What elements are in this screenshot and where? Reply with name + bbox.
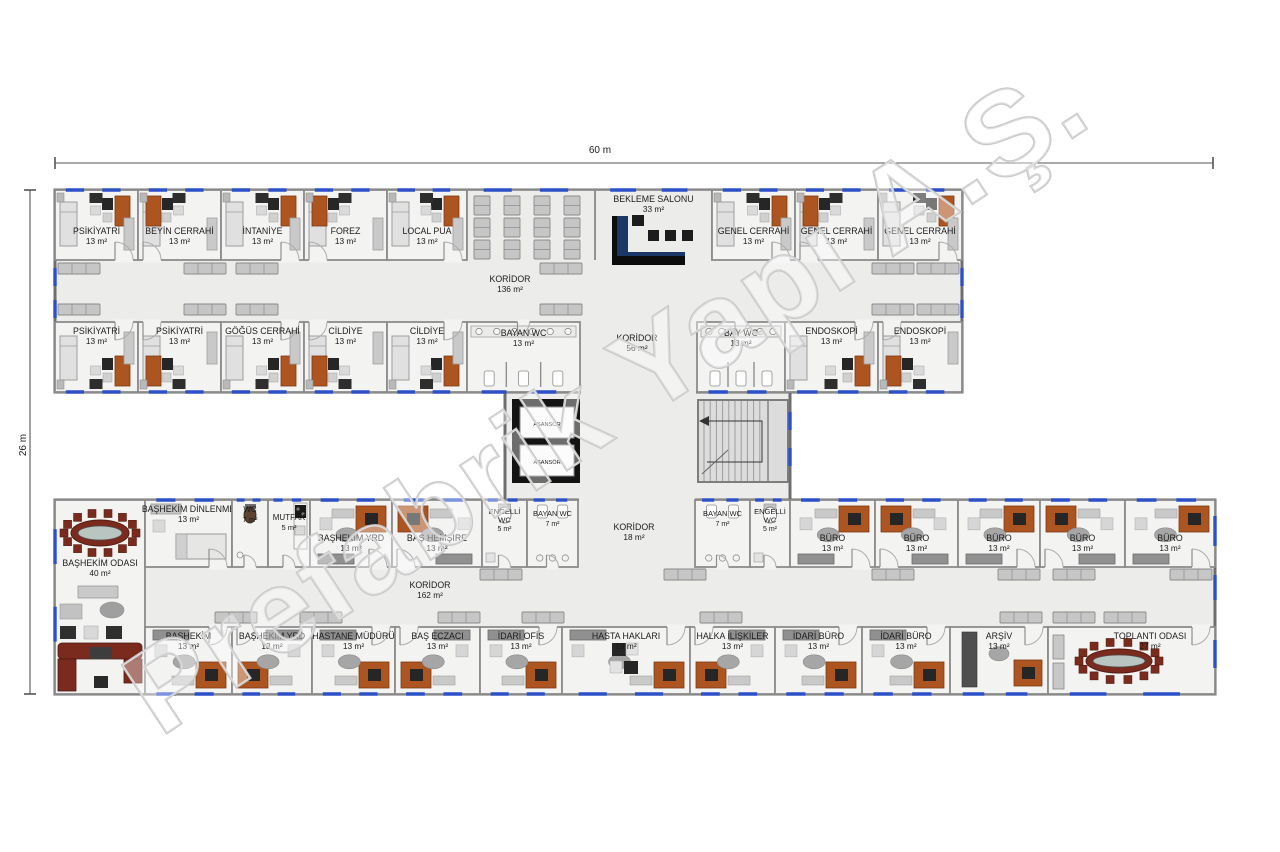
room-area-label: 13 m² — [906, 543, 927, 553]
monitor — [162, 358, 173, 370]
desk-return — [728, 676, 750, 685]
desk-return — [890, 676, 912, 685]
desk-return — [502, 676, 524, 685]
room-area-label: 7 m² — [546, 521, 561, 528]
side-table — [1101, 518, 1113, 530]
shelving — [962, 632, 977, 687]
monitor — [205, 669, 218, 681]
room-name-label: GENEL CERRAHİ — [801, 226, 873, 236]
desk-return — [270, 676, 292, 685]
side-table — [968, 518, 980, 530]
sink — [733, 555, 739, 561]
room-name-label: BAŞHEKİM — [166, 631, 211, 641]
side-table — [288, 645, 300, 657]
exec-desk-leg — [124, 659, 142, 683]
room-name-label: ARŞİV — [986, 631, 1013, 641]
room-area-label: 33 m² — [643, 204, 664, 214]
conference-chair — [1090, 672, 1098, 680]
conference-chair — [118, 545, 126, 553]
room-name-label: BAYAN WC — [501, 328, 547, 338]
monitor — [890, 513, 903, 525]
bed — [226, 202, 243, 246]
bench — [700, 612, 742, 623]
room-name-label: PSİKİYATRİ — [73, 326, 120, 336]
room-area-label: 13 m² — [335, 336, 356, 346]
door-opening — [444, 257, 462, 262]
tv — [825, 379, 838, 389]
speaker — [389, 380, 396, 389]
side-table — [785, 645, 797, 657]
room-ci-ldi-ye: CİLDİYE13 m² — [387, 319, 467, 392]
wardrobe — [207, 332, 217, 364]
room-area-label: 13 m² — [426, 543, 447, 553]
tv — [747, 193, 760, 203]
reception-desk-shadow — [612, 256, 685, 265]
room-name-label: ENDOSKOPİ — [894, 326, 946, 336]
room-psi-ki-yatri-: PSİKİYATRİ13 m² — [55, 190, 138, 263]
room-name-label: BEYİN CERRAHİ — [145, 226, 213, 236]
stool — [632, 215, 644, 226]
conference-chair — [1079, 665, 1087, 673]
conference-chair — [1079, 649, 1087, 657]
room-area-label: 13 m² — [513, 338, 534, 348]
corridor-name-label: KORİDOR — [616, 333, 657, 343]
monitor — [926, 198, 937, 210]
room-name-label: BÜRO — [1157, 533, 1183, 543]
desk-return — [335, 676, 357, 685]
room-name-label: GENEL CERRAHİ — [884, 226, 956, 236]
conference-chair — [118, 513, 126, 521]
bench — [998, 569, 1040, 580]
door-opening — [735, 319, 747, 324]
side-table — [91, 366, 101, 375]
chair — [927, 213, 936, 222]
door-opening — [518, 319, 530, 324]
room-endoskopi-: ENDOSKOPİ13 m² — [878, 319, 962, 392]
room-area-label: 13 m² — [252, 236, 273, 246]
room-name-label: WC — [498, 516, 511, 525]
monitor — [923, 669, 936, 681]
speaker — [57, 380, 64, 389]
room-mutfak: MUTFAK5 m² — [268, 500, 310, 570]
room-area-label: 13 m² — [988, 641, 1009, 651]
conference-chair — [132, 529, 140, 537]
room-name-label: FOREZ — [331, 226, 361, 236]
sink — [754, 553, 763, 562]
tv — [173, 193, 186, 203]
room-bayan-wc: BAYAN WC7 m² — [527, 500, 578, 570]
desk-return — [172, 676, 194, 685]
chair — [610, 661, 622, 673]
door-opening — [444, 319, 462, 324]
room-baş-eczaci: BAŞ ECZACI13 m² — [395, 624, 480, 694]
room-area-label: 27 m² — [1139, 641, 1160, 651]
stair-well — [698, 400, 788, 482]
side-table — [748, 206, 758, 215]
room-name-label: BAŞHEKİM YRD — [239, 631, 305, 641]
sink — [562, 555, 568, 561]
room-name-label: BAŞ HEMŞİRE — [407, 533, 467, 543]
room-name-label: WC — [243, 505, 257, 514]
speaker — [140, 380, 147, 389]
desk — [312, 356, 327, 386]
chair — [103, 373, 112, 382]
monitor — [1022, 667, 1035, 679]
chair — [269, 373, 278, 382]
burner — [296, 507, 299, 510]
door-opening — [852, 564, 870, 569]
cabinet — [1133, 554, 1169, 564]
monitor — [162, 198, 173, 210]
chair — [843, 373, 852, 382]
conference-chair — [64, 538, 72, 546]
bench — [540, 263, 582, 274]
room-name-label: İDARİ BÜRO — [793, 631, 844, 641]
corridor-area-label: 18 m² — [623, 532, 644, 542]
side-table — [421, 206, 431, 215]
room-name-label: BAŞHEKİM YRD — [318, 533, 384, 543]
sink — [770, 328, 776, 334]
floor-plan-svg: 60 m26 mPSİKİYATRİ13 m²BEYİN CERRAHİ13 m… — [0, 0, 1280, 852]
side-table — [174, 366, 184, 375]
room-name-label: GÖĞÜS CERRAHİ — [225, 326, 300, 336]
side-table — [153, 520, 165, 532]
bench — [215, 612, 257, 623]
bench — [1104, 612, 1146, 623]
side-table — [340, 206, 350, 215]
chair — [328, 213, 337, 222]
chair — [103, 213, 112, 222]
room-area-label: 13 m² — [730, 338, 751, 348]
bench — [184, 263, 226, 274]
bed — [60, 336, 77, 380]
monitor — [268, 358, 279, 370]
room-hastane-müdürü: HASTANE MÜDÜRÜ13 m² — [312, 624, 395, 694]
conference-chair — [1124, 676, 1132, 684]
desk-return — [630, 676, 652, 685]
wall-opening — [581, 388, 696, 395]
room-area-label: 13 m² — [252, 336, 273, 346]
toilet — [553, 371, 563, 386]
chair — [432, 213, 441, 222]
side-table — [458, 518, 470, 530]
room-bekleme-salonu: BEKLEME SALONU33 m² — [595, 190, 712, 265]
room-area-label: 13 m² — [416, 236, 437, 246]
desk-return — [980, 509, 1002, 518]
elevators: ASANSÖRASANSÖR — [512, 399, 580, 483]
guest-chair — [106, 626, 122, 639]
wall-opening — [579, 496, 695, 503]
room-başheki-m-yrd: BAŞHEKİM YRD13 m² — [232, 624, 312, 694]
stool — [682, 230, 693, 241]
monitor — [663, 669, 676, 681]
door-opening — [115, 257, 133, 262]
speaker — [306, 380, 313, 389]
bench — [664, 569, 706, 580]
room-forez: FOREZ13 m² — [304, 190, 387, 263]
speaker — [714, 193, 721, 202]
conference-chair — [128, 538, 136, 546]
desk-return — [815, 509, 837, 518]
exec-chair — [90, 647, 112, 659]
sink — [476, 328, 482, 334]
bed — [883, 202, 900, 246]
chair — [162, 213, 171, 222]
toilet — [736, 371, 746, 386]
cabinet — [318, 554, 354, 564]
side-table — [490, 645, 502, 657]
conference-chair — [104, 548, 112, 556]
room-area-label: 13 m² — [86, 236, 107, 246]
monitor — [535, 669, 548, 681]
door-opening — [883, 319, 901, 324]
dimension-height-label: 26 m — [18, 434, 29, 456]
room-area-label: 13 m² — [743, 236, 764, 246]
door-opening — [281, 319, 299, 324]
room-area-label: 13 m² — [826, 236, 847, 246]
bench — [236, 304, 278, 315]
room-name-label: MUTFAK — [273, 513, 306, 522]
room-name-label: BAYAN WC — [703, 509, 742, 518]
sink — [486, 553, 495, 562]
room-area-label: 7 m² — [243, 515, 259, 524]
side-table — [155, 645, 167, 657]
room-psi-ki-yatri-: PSİKİYATRİ13 m² — [55, 319, 138, 392]
room-göğüs-cerrahi-: GÖĞÜS CERRAHİ13 m² — [221, 319, 304, 392]
room-area-label: 13 m² — [343, 641, 364, 651]
chair — [432, 373, 441, 382]
bench — [1053, 569, 1095, 580]
room-toplanti-odasi: TOPLANTI ODASI27 m² — [1048, 624, 1215, 694]
chair — [269, 213, 278, 222]
bench — [1170, 569, 1212, 580]
tv — [339, 379, 352, 389]
side-table — [914, 366, 924, 375]
door-opening — [115, 319, 133, 324]
room-name-label: PSİKİYATRİ — [73, 226, 120, 236]
side-table — [456, 645, 468, 657]
toilet — [519, 371, 529, 386]
speaker — [389, 193, 396, 202]
bench — [58, 263, 100, 274]
room-büro: BÜRO13 m² — [1125, 500, 1215, 570]
room-area-label: 13 m² — [86, 336, 107, 346]
door-opening — [237, 624, 255, 629]
bench — [438, 612, 480, 623]
bed-pillow — [176, 534, 187, 559]
room-area-label: 13 m² — [416, 336, 437, 346]
side-table — [340, 366, 350, 375]
monitor — [705, 669, 718, 681]
tv — [173, 379, 186, 389]
corridor-area-label: 162 m² — [417, 590, 443, 600]
monitor — [759, 198, 770, 210]
room-name-label: BEKLEME SALONU — [613, 194, 693, 204]
room-büro: BÜRO13 m² — [790, 500, 875, 570]
bench — [872, 304, 914, 315]
monitor — [624, 661, 638, 674]
cabinet — [798, 554, 834, 564]
conference-chair — [1106, 676, 1114, 684]
desk — [886, 356, 901, 386]
desk-return — [1078, 509, 1100, 518]
room-başheki-m-odasi: BAŞHEKİM ODASI40 m² — [55, 500, 145, 694]
room-başheki-m-di-nlenme: BAŞHEKİM DİNLENME13 m² — [142, 500, 235, 570]
toilet — [762, 371, 772, 386]
side-table — [320, 518, 332, 530]
corridor-area-label: 56 m² — [626, 343, 647, 353]
room-area-label: 13 m² — [261, 641, 282, 651]
bench — [236, 263, 278, 274]
room-baş-hemşi-re: BAŞ HEMŞİRE13 m² — [392, 500, 482, 570]
door-opening — [309, 257, 327, 262]
monitor — [328, 358, 339, 370]
room-area-label: 13 m² — [822, 543, 843, 553]
door-opening — [839, 624, 857, 629]
side-table — [91, 206, 101, 215]
room-area-label: 19 m² — [615, 641, 636, 651]
side-table — [322, 645, 334, 657]
room-area-label: 13 m² — [909, 336, 930, 346]
conference-chair — [104, 510, 112, 518]
stool — [648, 230, 659, 241]
conference-chair — [128, 520, 136, 528]
room-area-label: 13 m² — [340, 543, 361, 553]
speaker — [797, 193, 804, 202]
conference-chair — [1140, 672, 1148, 680]
side-table — [84, 626, 98, 639]
door-opening — [695, 624, 713, 629]
conference-table — [1093, 655, 1145, 667]
room-name-label: İDARİ OFİS — [498, 631, 545, 641]
room-büro: BÜRO13 m² — [875, 500, 958, 570]
speaker — [140, 193, 147, 202]
side-table — [572, 645, 584, 657]
waiting-seating-zone — [467, 190, 595, 260]
chair — [902, 373, 911, 382]
room-name-label: İNTANİYE — [243, 226, 283, 236]
door-opening — [1192, 624, 1210, 629]
coffee-table — [100, 602, 124, 618]
monitor — [410, 669, 423, 681]
room-i-dari-ofi-s: İDARİ OFİS13 m² — [480, 624, 562, 694]
room-name-label: İDARİ BÜRO — [880, 631, 931, 641]
bench — [540, 304, 582, 315]
bench — [872, 263, 914, 274]
room-name-label: HASTA HAKLARI — [592, 631, 660, 641]
conference-chair — [1075, 657, 1083, 665]
sink — [237, 552, 243, 558]
door-opening — [244, 564, 256, 569]
room-area-label: 5 m² — [763, 526, 778, 533]
room-name-label: BÜRO — [904, 533, 930, 543]
door-opening — [369, 564, 387, 569]
exec-desk-leg — [58, 659, 76, 691]
tv — [830, 193, 843, 203]
conference-chair — [74, 545, 82, 553]
tv — [339, 193, 352, 203]
kitchen-sink — [295, 526, 305, 535]
staircase — [698, 400, 790, 482]
monitor — [431, 358, 442, 370]
room-engelli-wc: ENGELLİWC5 m² — [482, 500, 527, 570]
rug — [173, 655, 195, 669]
side-table — [800, 518, 812, 530]
room-genel-cerrahi-: GENEL CERRAHİ13 m² — [795, 190, 878, 263]
monitor — [1055, 513, 1068, 525]
room-name-label: CİLDİYE — [410, 326, 444, 336]
cabinet — [1079, 554, 1115, 564]
room-area-label: 13 m² — [1072, 543, 1093, 553]
conference-chair — [1090, 642, 1098, 650]
conference-chair — [1155, 657, 1163, 665]
reception-desk-shadow — [612, 216, 617, 261]
room-name-label: BÜRO — [986, 533, 1012, 543]
room-area-label: 13 m² — [178, 641, 199, 651]
rug — [506, 655, 528, 669]
bench — [522, 612, 564, 623]
monitor — [1013, 513, 1026, 525]
sink — [494, 328, 500, 334]
speaker — [880, 193, 887, 202]
room-başheki-m-yrd: BAŞHEKİM YRD13 m² — [310, 500, 392, 570]
room-arşi-v: ARŞİV13 m² — [950, 624, 1048, 694]
bench — [1053, 612, 1095, 623]
room-i-dari-büro: İDARİ BÜRO13 m² — [775, 624, 862, 694]
rug — [717, 655, 739, 669]
dimension-width-label: 60 m — [589, 145, 611, 156]
bench — [917, 263, 959, 274]
desk — [146, 356, 161, 386]
side-table — [934, 518, 946, 530]
door-opening — [372, 624, 390, 629]
desk-return — [913, 509, 935, 518]
bench — [58, 304, 100, 315]
door-opening — [855, 319, 873, 324]
side-table — [914, 206, 924, 215]
cabinet — [1053, 635, 1064, 659]
sink — [706, 555, 712, 561]
sofa — [78, 586, 118, 598]
side-table — [421, 366, 431, 375]
side-table — [826, 366, 836, 375]
monitor — [247, 669, 260, 681]
chair — [328, 373, 337, 382]
room-name-label: LOCAL PUA — [402, 226, 451, 236]
room-area-label: 13 m² — [169, 336, 190, 346]
desk — [803, 196, 818, 226]
chair — [162, 373, 171, 382]
door-opening — [764, 564, 776, 569]
desk-return — [430, 509, 452, 518]
room-area-label: 13 m² — [169, 236, 190, 246]
room-area-label: 13 m² — [988, 543, 1009, 553]
room-büro: BÜRO13 m² — [1040, 500, 1125, 570]
room-başheki-m: BAŞHEKİM13 m² — [145, 624, 232, 694]
monitor — [819, 198, 830, 210]
desk-return — [332, 509, 354, 518]
chair — [819, 213, 828, 222]
room-area-label: 13 m² — [335, 236, 356, 246]
room-genel-cerrahi-: GENEL CERRAHİ13 m² — [878, 190, 962, 263]
conference-table — [78, 526, 122, 540]
monitor — [1188, 513, 1201, 525]
speaker — [306, 193, 313, 202]
tv — [913, 193, 926, 203]
side-table — [1135, 518, 1147, 530]
door-opening — [667, 624, 685, 629]
monitor — [842, 358, 853, 370]
